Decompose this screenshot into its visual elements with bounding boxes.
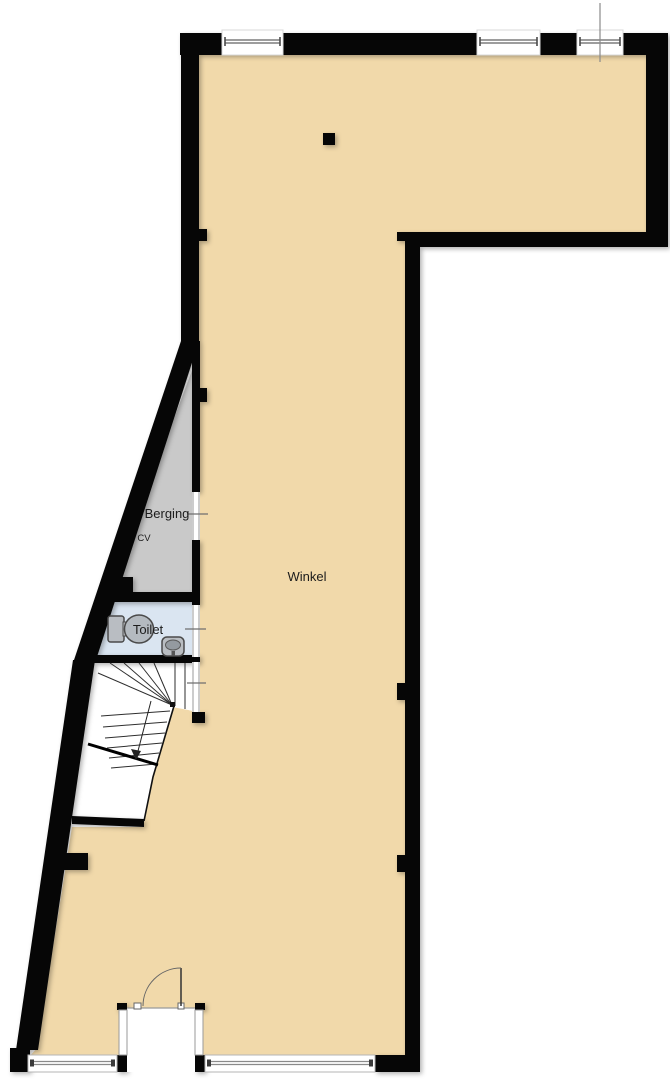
wall-inner-mid: [192, 540, 200, 605]
vestibule-sidewall-left: [119, 1010, 127, 1055]
wall-toilet-bottom: [88, 655, 200, 663]
window-bottom-left: [28, 1055, 117, 1072]
room-label-winkel: Winkel: [287, 569, 326, 584]
wall-right-lower: [405, 232, 420, 1072]
wall-stub-right-upper: [397, 683, 405, 700]
structural-column: [323, 133, 335, 145]
wall-inner-end: [192, 712, 205, 723]
vestibule-sidewall-right: [195, 1010, 203, 1055]
wall-stub-right-lower: [397, 855, 405, 872]
floorplan-svg: Winkel Berging CV Toilet: [0, 0, 670, 1080]
sink-icon: [162, 637, 184, 656]
wall-step-horizontal2: [405, 232, 668, 247]
room-label-cv: CV: [137, 533, 151, 544]
room-label-toilet: Toilet: [133, 622, 164, 637]
window-top-1: [222, 30, 283, 55]
window-top-2: [477, 30, 540, 55]
wall-right-upper: [646, 33, 668, 247]
wall-entry-jamb-left: [117, 1055, 127, 1072]
wall-stub-left: [198, 229, 207, 241]
stair-newel-post: [170, 702, 175, 707]
window-bottom-right: [205, 1055, 375, 1072]
wall-corner-bottom-right: [375, 1055, 420, 1072]
floorplan-page: Winkel Berging CV Toilet: [0, 0, 670, 1080]
door-stop-left: [134, 1003, 141, 1009]
wall-inner-upper: [192, 341, 200, 492]
wall-entry-sill-right: [195, 1003, 205, 1010]
vestibule-floor: [127, 1008, 195, 1072]
room-label-berging: Berging: [145, 506, 190, 521]
wall-stub-berging: [198, 388, 207, 402]
wall-entry-jamb-right: [195, 1055, 205, 1072]
wall-entry-sill-left: [117, 1003, 127, 1010]
wall-corner-bottom-left: [10, 1048, 30, 1072]
wall-berging-bottom: [114, 592, 200, 602]
wall-stub-diagonal: [64, 853, 88, 870]
wall-berging-step: [114, 577, 133, 593]
wall-left-vertical: [181, 33, 199, 343]
